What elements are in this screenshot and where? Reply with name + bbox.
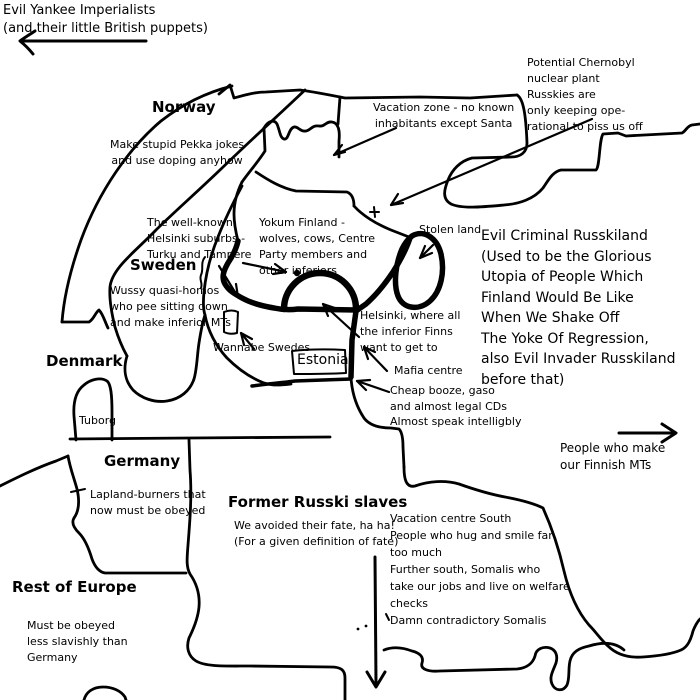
- label-yankee-imperialists: Evil Yankee Imperialists (and their litt…: [3, 2, 208, 38]
- vacation-zone-arrow: [334, 128, 396, 155]
- south-europe-arc-line: [84, 687, 126, 700]
- lapland-bottom-line: [256, 172, 354, 206]
- germany-east-border-line: [187, 440, 345, 700]
- baltic-coast-segment-line: [252, 379, 351, 386]
- label-russkiland: Evil Criminal Russkiland (Used to be the…: [481, 226, 676, 390]
- estonia-thick-border-line: [351, 311, 356, 377]
- arctic-top-coast-line: [219, 85, 517, 98]
- stolen-land-arrow: [420, 245, 433, 258]
- label-vacation-south: Vacation centre South People who hug and…: [390, 510, 570, 629]
- northwest-europe-coast-line: [0, 456, 68, 486]
- label-must-be-obeyed: Must be obeyed less slavishly than Germa…: [27, 618, 128, 666]
- label-estonia: Estonia: [297, 352, 349, 368]
- somali-tick-mark: [386, 614, 389, 620]
- label-wannabe-swedes: Wannabe Swedes: [213, 340, 310, 356]
- label-yokum-finland: Yokum Finland - wolves, cows, Centre Par…: [259, 215, 375, 279]
- vacation-south-arrow: [367, 557, 385, 687]
- label-sweden: Sweden: [130, 256, 196, 274]
- label-helsinki: Helsinki, where all the inferior Finns w…: [360, 308, 460, 356]
- label-pekka-jokes: Make stupid Pekka jokes and use doping a…: [110, 137, 244, 169]
- label-denmark: Denmark: [46, 352, 122, 370]
- label-rest-of-europe: Rest of Europe: [12, 578, 137, 596]
- label-norway: Norway: [152, 98, 216, 116]
- label-tuborg: Tuborg: [79, 413, 116, 429]
- label-vacation-zone: Vacation zone - no known inhabitants exc…: [373, 100, 514, 132]
- norway-south-coast-line: [62, 310, 108, 328]
- denmark-jutland-line: [74, 379, 112, 440]
- lapland-hand-left-line: [242, 128, 265, 182]
- label-chernobyl: Potential Chernobyl nuclear plant Russki…: [527, 55, 643, 135]
- stolen-land-blob-outline: [395, 234, 442, 308]
- norway-finland-border-line: [338, 97, 340, 124]
- label-stolen-land: Stolen land: [419, 222, 481, 238]
- baltic-south-coast-line: [70, 437, 330, 439]
- somali-dot-1: [357, 628, 360, 631]
- label-wussy-swedes: Wussy quasi-homos who pee sitting down a…: [110, 283, 231, 331]
- label-finnish-mts: People who make our Finnish MTs: [560, 440, 665, 474]
- label-avoided-fate: We avoided their fate, ha ha! (For a giv…: [234, 518, 398, 550]
- label-cheap-booze: Cheap booze, gaso and almost legal CDs A…: [390, 383, 521, 430]
- cheap-booze-arrow: [357, 380, 389, 392]
- label-former-slaves: Former Russki slaves: [228, 493, 407, 511]
- label-lapland-burners: Lapland-burners that now must be obeyed: [90, 487, 206, 519]
- label-germany: Germany: [104, 452, 180, 470]
- satirical-finland-map: Evil Yankee Imperialists (and their litt…: [0, 0, 700, 700]
- label-mafia-centre: Mafia centre: [394, 363, 463, 379]
- somali-dot-2: [365, 625, 368, 628]
- black-sea-coast-line: [384, 643, 624, 689]
- lapland-hand-fingers-line: [264, 121, 339, 157]
